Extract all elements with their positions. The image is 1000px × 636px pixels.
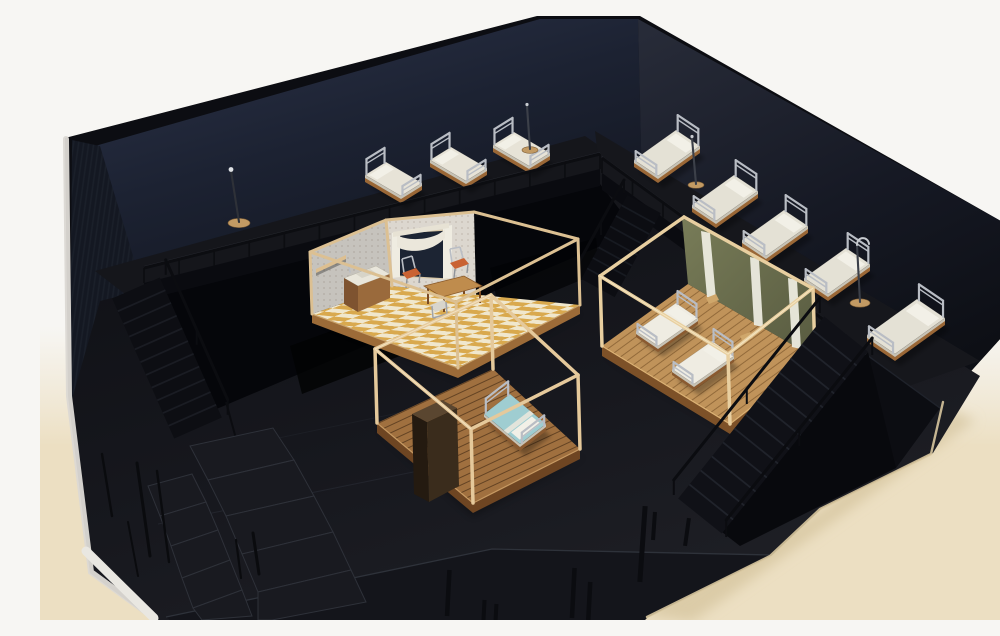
scene-canvas bbox=[40, 16, 1000, 620]
set-model-photograph bbox=[40, 16, 1000, 620]
